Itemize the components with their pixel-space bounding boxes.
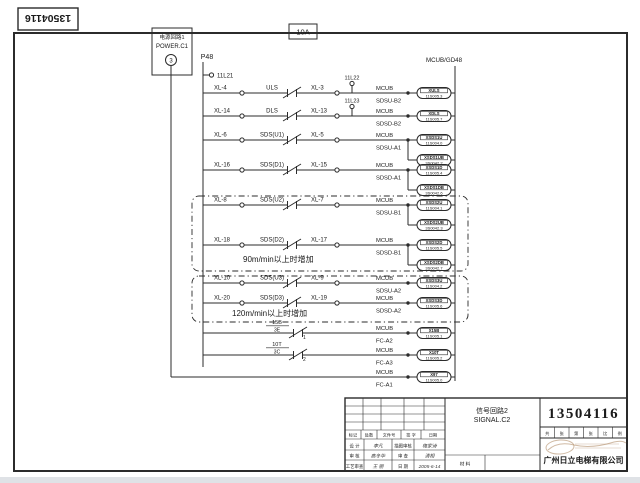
svg-text:11S005.1: 11S005.1 (426, 333, 444, 338)
svg-text:SDS(D2): SDS(D2) (260, 238, 284, 244)
svg-text:XL-10: XL-10 (214, 276, 231, 282)
circuit-row: XL-14DLSXL-1311L23MCUBSDSD-B2XDLS11S005.… (203, 99, 455, 128)
svg-text:SDSU-A2: SDSU-A2 (376, 289, 401, 295)
terminal-box: XSDS1DB3S0042.6 (417, 185, 451, 196)
stub-11l21: 11L21 (203, 73, 234, 80)
circuit-rows: XL-4ULSXL-311L22MCUBSDSU-B2XULS11S005.3X… (171, 76, 455, 389)
svg-text:XL-16: XL-16 (214, 163, 231, 169)
svg-text:DLS: DLS (266, 109, 278, 115)
svg-text:审 查: 审 查 (398, 453, 409, 460)
svg-text:高冬毕: 高冬毕 (371, 453, 387, 460)
circuit-row: XL-16SDS(D1)XL-15MCUBSDSD-A1XSDS1D11S005… (203, 163, 455, 196)
drawing-title-cn: 信号回路2 (476, 406, 508, 415)
svg-text:王 丽: 王 丽 (373, 464, 385, 470)
svg-text:梅家诗: 梅家诗 (422, 443, 438, 450)
terminal-box: XSDS1D11S005.4 (417, 165, 451, 176)
svg-text:MCUB: MCUB (376, 348, 393, 354)
right-bus-label: MCUB/GD48 (426, 57, 463, 64)
terminal-box: XSDS1U11S004.0 (417, 135, 451, 146)
power-source-box: 电源回路1 POWER.C1 3 (152, 28, 192, 75)
svg-text:XSDS2U: XSDS2U (426, 200, 443, 205)
svg-text:SDSD-B2: SDSD-B2 (376, 122, 401, 128)
svg-text:XULS: XULS (428, 88, 439, 93)
caption-120: 120m/min以上时增加 (232, 308, 307, 318)
svg-text:11S005.6: 11S005.6 (426, 303, 444, 308)
terminal-box: XSDS1UB3S0042.2 (417, 155, 451, 166)
svg-text:XL-13: XL-13 (311, 109, 328, 115)
svg-text:XL-19: XL-19 (311, 296, 328, 302)
svg-text:例: 例 (618, 430, 622, 437)
svg-text:第: 第 (574, 430, 578, 437)
svg-text:X10T: X10T (429, 350, 439, 355)
svg-text:张: 张 (589, 430, 594, 437)
circuit-row: 10T3C2MCUBFC-A3X10T11S005.2 (203, 342, 455, 367)
svg-text:XSDS1D: XSDS1D (426, 165, 443, 170)
svg-text:MCUB: MCUB (376, 326, 393, 332)
svg-text:3C: 3C (274, 350, 281, 356)
svg-text:11S004.2: 11S004.2 (426, 283, 444, 288)
svg-text:MCUB: MCUB (376, 163, 393, 169)
svg-text:SDSU-B2: SDSU-B2 (376, 99, 401, 105)
svg-text:比: 比 (603, 430, 607, 437)
svg-text:共: 共 (545, 430, 549, 437)
svg-text:XL-18: XL-18 (214, 238, 231, 244)
svg-text:SDSD-A2: SDSD-A2 (376, 309, 401, 315)
svg-text:11S005.4: 11S005.4 (426, 170, 444, 175)
svg-text:SDS(D1): SDS(D1) (260, 163, 284, 169)
circuit-row: XL-8SDS(U2)XL-7MCUBSDSU-B1XSDS2U11S004.1… (203, 198, 455, 231)
svg-text:11S005.2: 11S005.2 (426, 355, 444, 360)
svg-text:3S0042.3: 3S0042.3 (425, 225, 443, 230)
power-box-label-cn: 电源回路1 (159, 33, 184, 41)
drawing-number: 13504116 (548, 406, 619, 422)
svg-text:XSDS2DB: XSDS2DB (424, 260, 444, 265)
svg-text:设 计: 设 计 (349, 443, 360, 450)
svg-text:ULS: ULS (266, 86, 278, 92)
svg-text:签 字: 签 字 (406, 432, 416, 438)
svg-text:SDSD-B1: SDSD-B1 (376, 251, 401, 257)
fuse-rating-box: 10A (289, 24, 317, 39)
svg-text:11S005.5: 11S005.5 (426, 245, 444, 250)
svg-text:清相: 清相 (425, 453, 436, 460)
svg-text:XDLS: XDLS (428, 111, 439, 116)
svg-text:3S0042.6: 3S0042.6 (425, 190, 443, 195)
schematic-sheet: 13504116 电源回路1 POWER.C1 3 10A P48 MCUB/G… (0, 0, 640, 483)
svg-text:XL-6: XL-6 (214, 133, 227, 139)
svg-text:SDS(D3): SDS(D3) (260, 296, 284, 302)
svg-text:11S004.0: 11S004.0 (426, 140, 444, 145)
svg-text:FC-A2: FC-A2 (376, 339, 393, 345)
svg-text:XSDS2D: XSDS2D (426, 240, 443, 245)
signal-circuit-diagram: 13504116 电源回路1 POWER.C1 3 10A P48 MCUB/G… (0, 0, 640, 483)
power-box-label-en: POWER.C1 (156, 44, 189, 50)
svg-text:描图审核: 描图审核 (394, 443, 412, 450)
caption-90: 90m/min以上时增加 (243, 254, 314, 264)
svg-text:3S0042.7: 3S0042.7 (425, 265, 443, 270)
svg-text:XL-15: XL-15 (311, 163, 328, 169)
svg-text:XSDS1U: XSDS1U (426, 135, 443, 140)
svg-text:MCUB: MCUB (376, 133, 393, 139)
sheet-border (14, 33, 627, 471)
svg-text:MCUB: MCUB (376, 370, 393, 376)
svg-text:MCUB: MCUB (376, 86, 393, 92)
circuit-row: 15B3E1MCUBFC-A2X15B11S005.1 (203, 320, 455, 345)
terminal-box: XSDS2D11S005.5 (417, 240, 451, 251)
stamp-watermark (546, 439, 626, 455)
svg-text:日 期: 日 期 (398, 464, 409, 470)
terminal-box: XSDS2UB3S0042.3 (417, 220, 451, 231)
left-bus-label: P48 (201, 54, 214, 61)
svg-text:MCUB: MCUB (376, 276, 393, 282)
svg-text:11S005.3: 11S005.3 (426, 93, 444, 98)
svg-text:2005-6-14: 2005-6-14 (418, 464, 441, 470)
stub-11l21-label: 11L21 (217, 74, 234, 80)
svg-text:MCUB: MCUB (376, 198, 393, 204)
terminal-box: XDLS11S005.7 (417, 111, 451, 122)
svg-text:工艺审查: 工艺审查 (346, 463, 364, 470)
svg-text:2: 2 (303, 357, 306, 363)
svg-text:SDS(U1): SDS(U1) (260, 133, 284, 139)
title-block: 信号回路2 SIGNAL.C2 13504116 材 料 广州日立电梯有限公司 … (345, 398, 627, 471)
svg-text:1: 1 (303, 335, 306, 341)
svg-text:XL-3: XL-3 (311, 86, 324, 92)
svg-text:SDS(U2): SDS(U2) (260, 198, 284, 204)
svg-text:X97: X97 (430, 372, 438, 377)
svg-text:3E: 3E (274, 328, 281, 334)
terminal-box: XSDS3D11S005.6 (417, 298, 451, 309)
svg-text:SDSU-B1: SDSU-B1 (376, 211, 401, 217)
page-bottom-strip (0, 477, 640, 483)
svg-text:11S005.7: 11S005.7 (426, 116, 444, 121)
corner-drawing-number: 13504116 (25, 12, 71, 24)
svg-text:FC-A3: FC-A3 (376, 361, 393, 367)
terminal-box: XULS11S005.3 (417, 88, 451, 99)
svg-text:XL-14: XL-14 (214, 109, 231, 115)
terminal-box: X10T11S005.2 (417, 350, 451, 361)
svg-text:标记: 标记 (349, 432, 358, 439)
svg-text:SDSD-A1: SDSD-A1 (376, 176, 401, 182)
circuit-row: XL-6SDS(U1)XL-5MCUBSDSU-A1XSDS1U11S004.0… (203, 133, 455, 166)
svg-text:XL-17: XL-17 (311, 238, 328, 244)
svg-text:李凡: 李凡 (373, 443, 383, 450)
terminal-box: XSDS2U11S004.1 (417, 200, 451, 211)
svg-text:11S004.1: 11S004.1 (426, 205, 444, 210)
material-label: 材 料 (460, 461, 471, 468)
terminal-box: X15B11S005.1 (417, 328, 451, 339)
svg-text:XL-5: XL-5 (311, 133, 324, 139)
svg-text:审 核: 审 核 (349, 453, 360, 460)
svg-text:11S005.0: 11S005.0 (426, 377, 444, 382)
circuit-row: XL-18SDS(D2)XL-17MCUBSDSD-B1XSDS2D11S005… (203, 238, 455, 271)
circuit-row: XL-4ULSXL-311L22MCUBSDSU-B2XULS11S005.3 (203, 76, 455, 105)
svg-text:MCUB: MCUB (376, 238, 393, 244)
svg-text:SDS(U3): SDS(U3) (260, 276, 284, 282)
svg-text:XSDS1UB: XSDS1UB (424, 155, 444, 160)
svg-text:XL-9: XL-9 (311, 276, 324, 282)
svg-text:处数: 处数 (365, 432, 374, 439)
svg-text:XSDS3D: XSDS3D (426, 298, 443, 303)
svg-text:11L23: 11L23 (345, 99, 360, 105)
svg-text:10T: 10T (272, 342, 282, 348)
drawing-title-en: SIGNAL.C2 (474, 417, 511, 424)
svg-text:XSDS1DB: XSDS1DB (424, 185, 444, 190)
svg-text:11L22: 11L22 (345, 76, 360, 82)
fuse-rating-label: 10A (296, 28, 309, 37)
svg-text:XL-8: XL-8 (214, 198, 227, 204)
terminal-box: X9711S005.0 (417, 372, 451, 383)
svg-text:XL-20: XL-20 (214, 296, 231, 302)
svg-text:XSDS2UB: XSDS2UB (424, 220, 444, 225)
svg-text:XL-7: XL-7 (311, 198, 324, 204)
svg-text:文件号: 文件号 (383, 432, 396, 439)
drawing-number-box: 13504116 (18, 8, 78, 30)
svg-text:XL-4: XL-4 (214, 86, 227, 92)
svg-text:SDSU-A1: SDSU-A1 (376, 146, 401, 152)
svg-text:日期: 日期 (429, 433, 437, 439)
svg-text:张: 张 (560, 430, 565, 437)
svg-text:XSDS3U: XSDS3U (426, 278, 443, 283)
company-name: 广州日立电梯有限公司 (544, 455, 624, 465)
circuit-row: XL-10SDS(U3)XL-9MCUBSDSU-A2XSDS3U11S004.… (203, 276, 455, 295)
svg-text:FC-A1: FC-A1 (376, 383, 393, 389)
circuit-row: MCUBFC-A1X9711S005.0 (171, 370, 455, 389)
svg-text:X15B: X15B (429, 328, 439, 333)
svg-text:MCUB: MCUB (376, 296, 393, 302)
terminal-box: XSDS2DB3S0042.7 (417, 260, 451, 271)
svg-text:MCUB: MCUB (376, 109, 393, 115)
terminal-box: XSDS3U11S004.2 (417, 278, 451, 289)
svg-text:15B: 15B (272, 320, 282, 326)
